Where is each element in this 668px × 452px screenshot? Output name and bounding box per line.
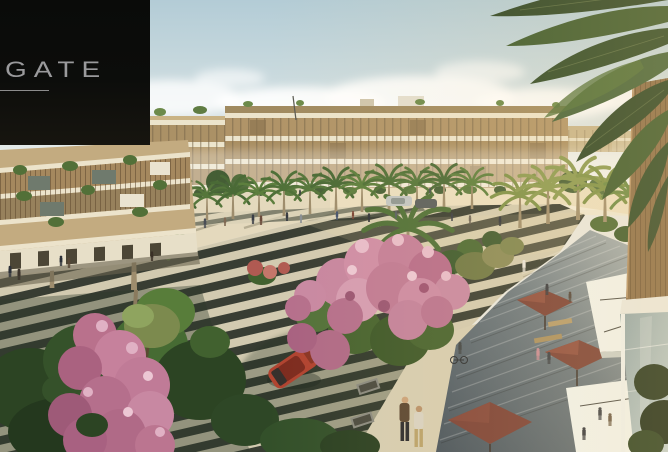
- listing-photo: GATE: [0, 0, 668, 452]
- gate-logo-underline: [0, 90, 49, 91]
- gate-logo-text: GATE: [5, 57, 153, 83]
- gate-logo: GATE: [0, 0, 150, 145]
